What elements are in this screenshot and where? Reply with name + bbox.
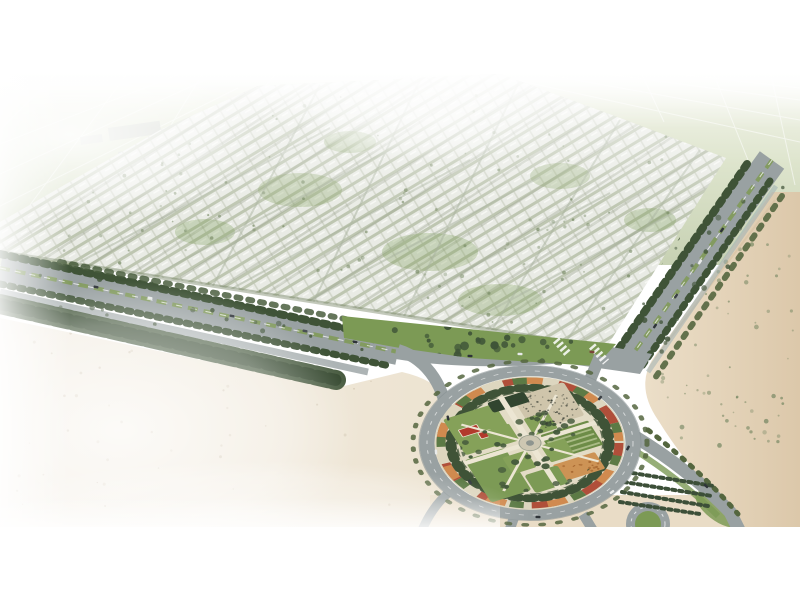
scatter-dot [690,264,693,267]
scatter-dot [749,430,752,433]
scatter-dot [701,285,707,291]
scatter-dot [729,366,731,368]
scatter-dot [427,339,431,343]
scatter-dot [660,380,664,384]
scatter-dot [659,320,663,324]
scatter-dot [692,282,698,288]
scatter-dot [746,275,748,277]
scatter-dot [725,264,730,269]
scatter-dot [778,268,781,271]
scatter-dot [787,358,789,360]
scatter-dot [767,310,770,313]
scatter-dot [425,334,430,339]
scatter-dot [754,438,756,440]
vehicle [435,449,438,454]
scatter-dot [661,376,665,380]
scatter-dot [353,388,355,390]
scatter-dot [455,349,461,355]
scatter-dot [494,345,501,352]
vehicle [467,355,472,358]
scatter-dot [663,341,667,345]
scatter-dot [722,415,724,417]
scatter-dot [667,396,669,398]
scatter-dot [716,215,722,221]
scatter-dot [766,243,769,246]
scatter-dot [754,322,756,324]
scatter-dot [767,440,770,443]
scatter-dot [675,317,679,321]
scatter-dot [792,329,794,331]
scatter-dot [746,426,750,430]
scatter-dot [775,274,778,277]
scatter-dot [460,341,469,350]
scatter-dot [569,340,573,344]
vehicle [535,516,540,519]
scatter-dot [790,309,793,312]
aerial-rendering-image: Aerial rendering of a desert master-plan… [0,0,800,600]
scatter-dot [707,391,711,395]
vehicle [517,353,522,356]
scatter-dot [309,335,312,338]
scatter-dot [545,345,549,349]
scatter-dot [780,397,783,400]
scatter-dot [680,436,683,439]
scatter-dot [501,341,508,348]
scatter-dot [707,374,710,377]
scatter-dot [642,302,645,305]
scatter-dot [750,409,754,413]
scatter-dot [674,247,677,250]
scatter-dot [736,396,738,398]
rendering-canvas: Aerial rendering of a desert master-plan… [0,0,800,600]
scatter-dot [702,392,705,395]
scatter-dot [540,339,547,346]
scatter-dot [788,255,791,258]
scatter-dot [781,402,784,405]
scatter-dot [659,349,663,353]
scatter-dot [511,343,516,348]
scatter-dot [518,336,525,343]
scatter-dot [716,307,719,310]
scatter-dot [370,381,371,382]
scatter-dot [717,443,722,448]
scatter-dot [686,385,688,387]
scatter-dot [661,373,664,376]
scatter-dot [764,419,769,424]
scatter-dot [777,434,781,438]
scatter-dot [392,327,398,333]
scatter-dot [429,343,434,348]
scatter-dot [703,249,708,254]
scatter-dot [728,301,730,303]
scatter-dot [360,348,363,351]
scatter-dot [735,425,737,427]
scatter-dot [504,335,510,341]
scatter-dot [720,403,722,405]
scatter-dot [741,200,745,204]
scatter-dot [696,389,698,391]
scatter-dot [762,430,766,434]
scatter-dot [707,230,712,235]
scatter-dot [725,419,729,423]
scatter-dot [665,336,670,341]
scatter-dot [684,393,686,395]
scatter-dot [733,412,735,414]
scatter-dot [642,317,648,323]
scatter-dot [737,225,743,231]
scatter-dot [476,337,481,342]
scatter-dot [778,415,780,417]
scatter-dot [744,401,746,403]
scatter-dot [781,186,785,190]
scatter-dot [670,271,673,274]
scatter-dot [468,331,472,335]
scatter-dot [771,394,775,398]
scatter-dot [754,325,759,330]
scatter-dot [727,313,729,315]
scatter-dot [694,343,697,346]
scatter-dot [744,280,748,284]
scatter-dot [776,440,779,443]
scatter-dot [680,425,685,430]
